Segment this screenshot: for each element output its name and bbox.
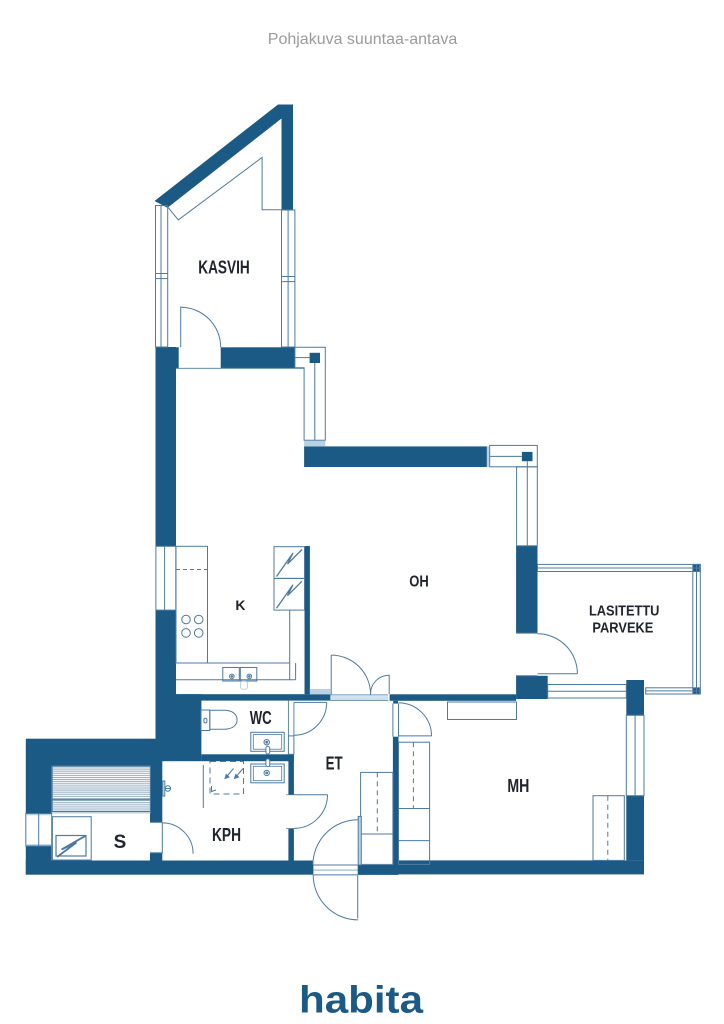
svg-text:WC: WC — [250, 708, 272, 728]
svg-text:PARVEKE: PARVEKE — [592, 620, 653, 637]
svg-text:K: K — [235, 597, 245, 613]
svg-text:MH: MH — [507, 776, 529, 796]
svg-text:KASVIH: KASVIH — [198, 257, 250, 277]
svg-text:LASITETTU: LASITETTU — [589, 602, 660, 619]
svg-text:ET: ET — [326, 754, 343, 774]
svg-text:KPH: KPH — [212, 825, 241, 845]
svg-text:Pohjakuva suuntaa-antava: Pohjakuva suuntaa-antava — [268, 31, 458, 48]
svg-text:OH: OH — [409, 573, 429, 590]
svg-text:habita: habita — [299, 980, 424, 1022]
svg-text:S: S — [114, 832, 127, 853]
